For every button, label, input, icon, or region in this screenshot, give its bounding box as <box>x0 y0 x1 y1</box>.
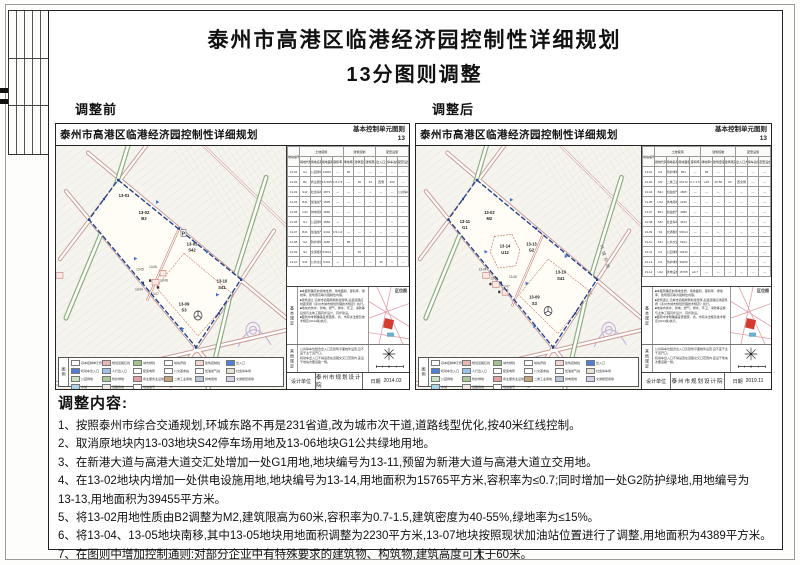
reg-basic-before: 基本规定 ■本图则确定的用地性质、用地面积、容积率、绿地率、建筑限高等为强制性内… <box>287 287 409 345</box>
parcel-code: S3 <box>181 307 187 312</box>
table-cell: — <box>712 187 724 197</box>
table-cell: — <box>689 257 701 267</box>
table-cell: U12 <box>655 197 667 207</box>
group-header: 建筑控制 <box>343 147 376 157</box>
table-cell: 13-09 <box>643 227 655 237</box>
table-cell: 53014 <box>678 227 690 237</box>
table-cell: 13-11 <box>643 247 655 257</box>
table-cell: — <box>398 207 409 217</box>
legend-item: 机动车出入口 <box>71 367 102 375</box>
table-cell: 公园绿地 <box>310 217 321 227</box>
table-cell: — <box>701 267 713 277</box>
table-cell: — <box>747 247 759 257</box>
table-cell: — <box>724 267 736 277</box>
binding-mark <box>0 99 8 104</box>
location-map-label: 区位图 <box>757 288 769 294</box>
col-header: 停车泊位 <box>387 157 398 167</box>
designer-label: 设计单位 <box>642 373 671 389</box>
legend-item: 防护绿地 <box>462 375 493 383</box>
legend-item: 水域 <box>431 383 462 389</box>
reg-line: ■本图则确定的用地性质、用地面积、容积率、绿地率、建筑限高等为强制性内容。 <box>300 289 366 298</box>
legend-swatch <box>226 360 235 366</box>
table-cell: — <box>398 177 409 187</box>
table-row: 13-08S42社会停车场用地3014——————— <box>643 217 771 227</box>
legend-swatch <box>431 384 440 389</box>
legend-label: 规划道路红线 <box>472 361 490 365</box>
table-cell: — <box>747 187 759 197</box>
table-cell: 社会停车场用地 <box>666 217 678 227</box>
legend-label: 建筑控制线 <box>565 361 580 365</box>
legend-swatch <box>555 376 564 382</box>
legend-item: 地块编号 <box>133 383 164 389</box>
table-cell: — <box>701 237 713 247</box>
legend-item: 供电用地 <box>195 375 226 383</box>
parcel-label: 13-03 <box>187 241 198 246</box>
legend-swatch <box>431 376 440 382</box>
table-cell: U12 <box>655 267 667 277</box>
legend-item: 地块界线 <box>164 359 195 367</box>
table-cell: B41 <box>655 207 667 217</box>
legend-label: 加油加气站 <box>205 369 220 373</box>
table-cell: — <box>736 217 748 227</box>
table-cell: — <box>365 217 376 227</box>
table-cell: — <box>376 207 387 217</box>
legend-label: 社会停车场 <box>236 369 251 373</box>
table-cell: ≤0.7 <box>689 267 701 277</box>
group-header: 配套设施 <box>376 147 409 157</box>
table-cell: — <box>712 247 724 257</box>
table-cell: — <box>343 247 354 257</box>
location-map-after: 区位图 <box>730 287 771 344</box>
table-cell: 0.5-1.0 <box>332 227 343 237</box>
designer-name: 泰州市规划设计院 <box>316 373 362 389</box>
table-cell: — <box>712 257 724 267</box>
table-cell: — <box>387 237 398 247</box>
panel-map-title: 泰州市高港区临港经济园控制性详细规划 <box>420 127 618 142</box>
table-cell: S42 <box>655 217 667 227</box>
reg-line: ■图则中未明确事宜按国家、省、市有关法规及技术规定(2014版)执行。 <box>300 315 366 324</box>
legend-label: 道路用地 <box>112 385 124 389</box>
table-cell: — <box>365 207 376 217</box>
date-cell: 日期 2014.03 <box>362 373 409 389</box>
legend-item: 人行出入口 <box>462 367 493 375</box>
legend-item: 出入口 <box>586 359 617 367</box>
table-cell: — <box>387 217 398 227</box>
legend-swatch <box>133 360 142 366</box>
legend-label: 建筑控制线 <box>205 361 220 365</box>
reg-line: 机动车出入口不得设置在道路交叉口范围内,宜设于地块次要道路一侧。 <box>300 356 366 365</box>
table-cell: B2 <box>300 177 311 187</box>
table-cell: — <box>332 257 343 267</box>
legend-item: 交通枢纽用地 <box>586 375 617 383</box>
table-cell: — <box>387 167 398 177</box>
table-cell: — <box>736 247 748 257</box>
table-cell: 13-04 <box>288 197 300 207</box>
legend-item: 商业服务业设施用地 <box>493 375 524 383</box>
legend-item: 道路用地 <box>102 383 133 389</box>
table-cell: — <box>712 207 724 217</box>
table-row: 13-07B41加油加气站用地34040.5-1.0—————— <box>288 227 409 237</box>
adjustment-item: 3、在新港大道与高港大道交汇处增加一处G1用地,地块编号为13-11,预留为新港… <box>58 454 774 472</box>
legend-swatch <box>102 376 111 382</box>
table-cell: — <box>376 187 387 197</box>
table-cell: 13-03 <box>288 187 300 197</box>
table-cell: — <box>712 227 724 237</box>
parcel-code: U12 <box>501 250 509 255</box>
reg-line: ■地块内供水、供电、燃气、排水、环卫、消防等设施与主体工程同步设计、同步建设。 <box>655 306 728 315</box>
table-cell: 4389 <box>678 207 690 217</box>
legend-label: 供电用地 <box>205 377 217 381</box>
legend-swatch <box>195 368 204 374</box>
table-cell: — <box>701 217 713 227</box>
table-row: 13-08G2防护绿地4066—85————— <box>288 237 409 247</box>
col-header: 出入口方位 <box>736 157 748 167</box>
table-cell: 13-05 <box>643 197 655 207</box>
table-cell: G1 <box>655 247 667 257</box>
table-cell: — <box>354 197 365 207</box>
table-cell: 60 <box>724 177 736 187</box>
legend-title: 图例 <box>421 367 427 377</box>
table-cell: — <box>759 177 771 187</box>
table-cell: — <box>759 207 771 217</box>
panel-before-header: 泰州市高港区临港经济园控制性详细规划 基本控制单元图则 13 <box>56 124 409 146</box>
legend-item: 二类工业用地 <box>524 375 555 383</box>
table-cell: 5404 <box>678 237 690 247</box>
table-cell: — <box>747 237 759 247</box>
col-header: 用地名称 <box>666 157 678 167</box>
table-cell: — <box>736 227 748 237</box>
table-cell: 防护绿地 <box>666 167 678 177</box>
table-cell: — <box>354 207 365 217</box>
table-cell: 1805 <box>678 187 690 197</box>
table-cell: — <box>354 167 365 177</box>
table-cell: — <box>354 187 365 197</box>
table-cell: 13-01 <box>288 167 300 177</box>
col-header: 出入口方位 <box>376 157 387 167</box>
table-cell: 30 <box>354 177 365 187</box>
legend-items: 基本控制单元界线 规划道路红线 城市绿线 地块界线 <box>69 358 283 386</box>
legend-label: 二类工业用地 <box>534 377 552 381</box>
table-cell: — <box>376 197 387 207</box>
legend-label: 二类工业用地 <box>174 377 192 381</box>
table-cell: — <box>747 267 759 277</box>
table-cell: 西侧 <box>376 177 387 187</box>
table-row: 13-02M2二类工业用地631720.7-1.5≤1540-5560西北侧—— <box>643 177 771 187</box>
table-cell: 公园绿地 <box>310 167 321 177</box>
table-cell: — <box>365 247 376 257</box>
legend-item: 出入口 <box>226 359 257 367</box>
col-header: 容积率 <box>332 157 343 167</box>
table-cell: 13-05 <box>288 207 300 217</box>
table-cell: — <box>712 267 724 277</box>
location-map-before: 区位图 <box>368 287 409 344</box>
map-after-drawing: 环城东路 13-11 G1 13-02 M2 13-14 U12 13-13 G… <box>416 146 641 389</box>
table-cell: — <box>712 217 724 227</box>
table-cell: 2230 <box>678 197 690 207</box>
table-cell: 1860 <box>321 217 332 227</box>
table-cell: 13-02 <box>643 177 655 187</box>
table-cell: 45 <box>376 257 387 267</box>
table-cell: — <box>365 227 376 237</box>
table-row: 13-10S41公共交通场站用地5404——————— <box>643 237 771 247</box>
legend-after: 图例 基本控制单元界线 规划道路红线 城市绿线 <box>418 357 639 387</box>
reg-other-text: 公共停车位结合出入口及建筑平面统筹设置,且不宜于主干道开口。机动车出入口不得设置… <box>298 345 368 372</box>
legend-item: 公园绿地 <box>431 375 462 383</box>
parcel-code: M2 <box>487 216 493 221</box>
table-cell: — <box>365 187 376 197</box>
legend-item: 人行出入口 <box>102 367 133 375</box>
table-cell: — <box>747 227 759 237</box>
legend-item: 配变电所 <box>133 367 164 375</box>
table-cell: — <box>343 257 354 267</box>
date-value-after: 2019.11 <box>746 378 764 384</box>
table-cell: 公共交通场站用地 <box>666 237 678 247</box>
table-cell: S3 <box>300 247 311 257</box>
legend-label: 人行出入口 <box>112 369 127 373</box>
panel-map-title: 泰州市高港区临港经济园控制性详细规划 <box>60 127 258 142</box>
table-cell: — <box>736 207 748 217</box>
table-cell: — <box>724 217 736 227</box>
table-cell: 13466 <box>321 167 332 177</box>
table-cell: — <box>724 257 736 267</box>
table-row: 13-10S41公共交通场站用地5404————45—— <box>288 257 409 267</box>
reg-line: ■图则中未明确事宜按国家、省、市有关法规及技术规定(2014版)执行。 <box>655 315 728 324</box>
legend-label: 规划道路红线 <box>112 361 130 365</box>
table-cell: — <box>387 257 398 267</box>
designer-name: 泰州市规划设计院 <box>671 373 724 389</box>
adjustments-heading: 调整内容: <box>58 392 128 413</box>
table-cell: 13-14 <box>643 267 655 277</box>
table-cell: 公共交通场站用地 <box>310 257 321 267</box>
map-after: 环城东路 13-11 G1 13-02 M2 13-14 U12 13-13 G… <box>416 146 641 389</box>
table-cell: 1805 <box>321 197 332 207</box>
legend-item: 规划道路红线 <box>102 359 133 367</box>
date-label: 日期 <box>733 378 743 385</box>
legend-item: 防护绿地 <box>102 375 133 383</box>
table-cell: — <box>354 217 365 227</box>
side-col-after: 地块编号 土地使用 建筑控制 配套设施 用地代码 用地名称 用地面积(m²) 容… <box>641 146 771 389</box>
legend-item: 城市绿线 <box>133 359 164 367</box>
table-row: 13-04B41加油加气站用地1805——————— <box>643 187 771 197</box>
col-header: 用地面积(m²) <box>321 157 332 167</box>
legend-item: 供电用地 <box>555 375 586 383</box>
side-col-before: 地块编号 土地使用 建筑控制 配套设施 用地代码 用地名称 用地面积(m²) 容… <box>286 146 409 389</box>
legend-label: 商业服务业设施用地 <box>503 377 524 381</box>
legend-swatch <box>164 360 173 366</box>
north-arrow-icon <box>369 345 409 372</box>
table-cell: — <box>689 197 701 207</box>
table-cell: — <box>398 197 409 207</box>
col-header: 用地面积(m²) <box>678 157 690 167</box>
legend-title: 图例 <box>61 367 67 377</box>
legend-label: 出入口 <box>236 361 245 365</box>
legend-swatch <box>133 376 142 382</box>
parcel-code: B2 <box>141 216 147 221</box>
parcel-label: 13-02 <box>139 210 150 215</box>
table-cell: — <box>759 247 771 257</box>
table-cell: 13-07 <box>643 207 655 217</box>
parcel-code: S41 <box>557 276 565 281</box>
table-cell: 供电用地 <box>310 207 321 217</box>
adjustment-item: 7、在图则中增加控制通则:对部分企业中有特殊要求的建筑物、构筑物,建筑高度可大于… <box>58 546 774 564</box>
table-cell: 加油加气站用地 <box>666 187 678 197</box>
table-row: 13-07B41加油加气站用地4389——————— <box>643 207 771 217</box>
table-cell: ≤15 <box>701 177 713 187</box>
table-row: 13-01G2防护绿地851—85————— <box>643 167 771 177</box>
col-header: 建筑密度(%) <box>354 157 365 167</box>
table-cell: — <box>398 237 409 247</box>
legend-item: 城市绿线 <box>493 359 524 367</box>
table-row: 13-05U12供电用地2230——————— <box>643 197 771 207</box>
table-cell: — <box>747 197 759 207</box>
col-header: 用地代码 <box>655 157 667 167</box>
title-bar-before: 设计单位 泰州市规划设计院 日期 2014.03 <box>287 372 409 389</box>
legend-swatch <box>71 360 80 366</box>
table-row: 13-04B41加油加气站用地1805——————— <box>288 197 409 207</box>
table-cell: — <box>332 247 343 257</box>
legend-swatch <box>133 384 142 389</box>
legend-swatch <box>555 360 564 366</box>
table-cell: — <box>365 237 376 247</box>
table-cell: G2 <box>655 257 667 267</box>
legend-label: 城市绿线 <box>143 361 155 365</box>
table-row: 13-03S42社会停车场用地4873——————公共停车 <box>288 187 409 197</box>
table-cell: — <box>387 247 398 257</box>
parcel-label: 13-11 <box>460 219 471 224</box>
table-cell: — <box>736 197 748 207</box>
table-cell: — <box>689 247 701 257</box>
reg-basic-text: ■本图则确定的用地性质、用地面积、容积率、绿地率、建筑限高等为强制性内容。■建筑… <box>653 287 730 344</box>
page-title: 泰州市高港区临港经济园控制性详细规划 <box>48 24 781 54</box>
parcel-label: 13-09 <box>529 294 540 299</box>
parcel-label: 13-09 <box>179 301 190 306</box>
table-cell: 西北侧 <box>736 177 748 187</box>
table-cell: — <box>343 187 354 197</box>
parcel-label: 13-01 <box>119 193 130 198</box>
table-cell: — <box>332 197 343 207</box>
legend-swatch <box>586 368 595 374</box>
table-cell: — <box>332 207 343 217</box>
table-cell: B41 <box>300 197 311 207</box>
table-cell: — <box>747 177 759 187</box>
table-cell: 13-07 <box>288 227 300 237</box>
panel-after-header: 泰州市高港区临港经济园控制性详细规划 基本控制单元图则 13 <box>416 124 771 146</box>
col-header: 用地代码 <box>300 157 311 167</box>
legend-swatch <box>71 368 80 374</box>
reg-line: 机动车出入口不得设置在道路交叉口范围内,宜设于地块次要道路一侧。 <box>655 356 728 365</box>
reg-other-text: 公共停车位结合出入口及建筑平面统筹设置,且不宜于主干道开口。机动车出入口不得设置… <box>653 345 730 372</box>
table-cell: 85 <box>701 167 713 177</box>
legend-item: 社会停车场 <box>226 367 257 375</box>
legend-label: 配变电所 <box>143 369 155 373</box>
table-cell: — <box>398 227 409 237</box>
legend-item: 道路用地 <box>462 383 493 389</box>
label-after: 调整后 <box>432 99 474 118</box>
parcel-code: G2 <box>529 247 535 252</box>
table-row: 13-09S3交通枢纽用地53014——————— <box>643 227 771 237</box>
legend-label: 机动车出入口 <box>81 369 99 373</box>
reg-line: ■地块内供水、供电、燃气、排水、环卫、消防等设施与主体工程同步设计、同步建设。 <box>300 306 366 315</box>
table-cell: — <box>736 167 748 177</box>
legend-item: 地块界线 <box>524 359 555 367</box>
table-cell: — <box>354 227 365 237</box>
table-cell: G2 <box>655 167 667 177</box>
col-header: 建筑密度(%) <box>712 157 724 167</box>
table-cell: G2 <box>300 237 311 247</box>
legend-swatch <box>524 376 533 382</box>
legend-swatch <box>164 376 173 382</box>
table-cell: — <box>354 257 365 267</box>
legend-swatch <box>462 368 471 374</box>
table-cell: — <box>701 197 713 207</box>
table-cell: — <box>376 227 387 237</box>
table-cell: — <box>724 167 736 177</box>
legend-label: 商业服务业设施用地 <box>143 377 164 381</box>
table-cell: — <box>332 217 343 227</box>
legend-label: 地块编号 <box>143 385 155 389</box>
compass-before <box>368 345 409 372</box>
parcel-label: 13-10 <box>217 279 228 284</box>
table-cell: 交通枢纽用地 <box>310 247 321 257</box>
table-cell: — <box>736 267 748 277</box>
legend-label: 公交首末站 <box>534 369 549 373</box>
table-cell: B41 <box>655 187 667 197</box>
table-cell: — <box>701 187 713 197</box>
table-cell: 40 <box>354 247 365 257</box>
map-before: P 13-02 B2 13-03 S42 13-09 S3 13-10 S41 … <box>56 146 286 389</box>
table-cell: — <box>387 207 398 217</box>
table-cell: — <box>747 217 759 227</box>
table-cell: — <box>736 237 748 247</box>
binding-strip <box>8 10 50 155</box>
legend-swatch <box>102 368 111 374</box>
legend-swatch <box>431 360 440 366</box>
sheet-label: 基本控制单元图则 <box>715 126 767 134</box>
col-header: 容积率 <box>689 157 701 167</box>
legend-label: 交通枢纽用地 <box>236 377 254 381</box>
legend-swatch <box>462 360 471 366</box>
date-cell: 日期 2019.11 <box>724 373 771 389</box>
table-cell: 39455 <box>678 257 690 267</box>
legend-swatch <box>493 368 502 374</box>
legend-swatch <box>524 368 533 374</box>
legend-label: 水域 <box>81 385 87 389</box>
sheet-ref: 基本控制单元图则 13 <box>715 126 767 142</box>
table-cell: 4873 <box>321 187 332 197</box>
table-cell: — <box>343 197 354 207</box>
legend-item: 交通枢纽用地 <box>226 375 257 383</box>
legend-item: 建筑控制线 <box>195 359 226 367</box>
table-cell: 200 <box>387 177 398 187</box>
legend-label: 水域 <box>441 385 447 389</box>
table-cell: 65 <box>343 167 354 177</box>
table-row: 13-06G1公园绿地1860——————— <box>288 217 409 227</box>
table-cell: — <box>398 167 409 177</box>
legend-item: 基本控制单元界线 <box>71 359 102 367</box>
legend-label: 公园绿地 <box>441 377 453 381</box>
parcel-label: 13-04 <box>135 287 143 291</box>
table-cell: — <box>689 207 701 217</box>
table-row: 13-13G2防护绿地39455——————— <box>643 257 771 267</box>
table-cell: 53014 <box>321 247 332 257</box>
table-cell: — <box>398 257 409 267</box>
legend-swatch <box>226 368 235 374</box>
legend-swatch <box>493 376 502 382</box>
sheet-label: 基本控制单元图则 <box>353 126 405 134</box>
table-cell: — <box>712 167 724 177</box>
table-cell: M2 <box>655 177 667 187</box>
legend-swatch <box>493 384 502 389</box>
